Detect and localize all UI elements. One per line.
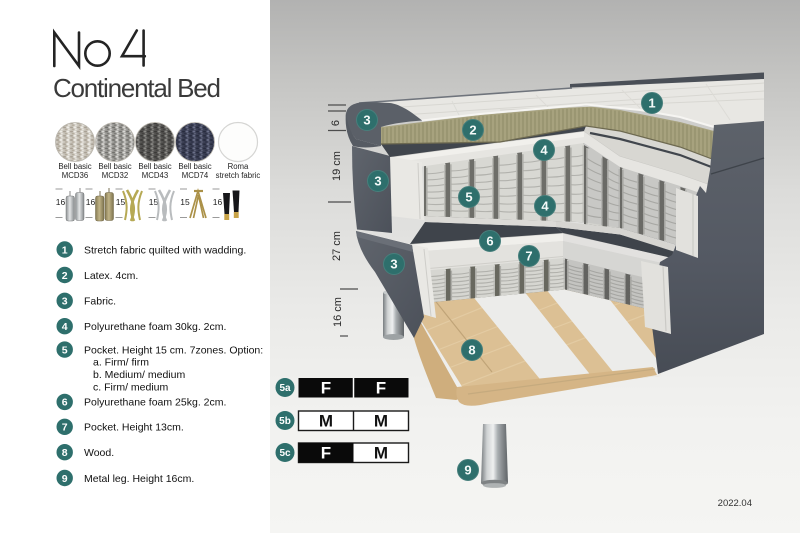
svg-text:3: 3 xyxy=(363,113,370,128)
svg-text:Polyurethane foam 30kg. 2cm.: Polyurethane foam 30kg. 2cm. xyxy=(84,321,226,333)
svg-text:Pocket. Height 15 cm. 7zones.: Pocket. Height 15 cm. 7zones. Option: xyxy=(84,344,263,356)
svg-text:3: 3 xyxy=(374,174,381,189)
svg-text:c. Firm/ medium: c. Firm/ medium xyxy=(93,381,169,393)
svg-text:Bell basic: Bell basic xyxy=(138,162,171,171)
svg-text:4: 4 xyxy=(541,199,549,214)
svg-text:4: 4 xyxy=(540,143,548,158)
svg-text:16 cm: 16 cm xyxy=(332,297,344,327)
svg-text:5a: 5a xyxy=(279,383,291,394)
svg-text:F: F xyxy=(321,444,331,463)
svg-text:5: 5 xyxy=(465,190,472,205)
svg-text:MCD43: MCD43 xyxy=(142,171,168,180)
svg-text:8: 8 xyxy=(468,343,475,358)
svg-text:1: 1 xyxy=(648,96,655,111)
svg-text:6: 6 xyxy=(486,234,493,249)
svg-text:6: 6 xyxy=(62,397,68,409)
svg-text:15: 15 xyxy=(116,197,126,207)
svg-text:1: 1 xyxy=(62,244,68,256)
svg-text:Fabric.: Fabric. xyxy=(84,296,116,308)
svg-text:3: 3 xyxy=(390,257,397,272)
svg-text:MCD32: MCD32 xyxy=(102,171,128,180)
svg-text:Polyurethane foam 25kg. 2cm.: Polyurethane foam 25kg. 2cm. xyxy=(84,397,226,409)
svg-text:5c: 5c xyxy=(279,448,291,459)
svg-text:27 cm: 27 cm xyxy=(331,231,343,261)
svg-text:3: 3 xyxy=(62,296,68,308)
svg-text:Bell basic: Bell basic xyxy=(98,162,131,171)
svg-text:M: M xyxy=(374,444,388,463)
svg-text:Roma: Roma xyxy=(228,162,249,171)
svg-text:4: 4 xyxy=(62,321,68,333)
svg-text:2022.04: 2022.04 xyxy=(718,498,752,509)
svg-text:Latex. 4cm.: Latex. 4cm. xyxy=(84,270,138,282)
svg-text:5: 5 xyxy=(62,344,68,356)
svg-text:16: 16 xyxy=(56,197,66,207)
svg-text:9: 9 xyxy=(464,463,471,478)
svg-text:a. Firm/ firm: a. Firm/ firm xyxy=(93,357,149,369)
svg-text:Bell basic: Bell basic xyxy=(178,162,211,171)
svg-text:9: 9 xyxy=(62,473,68,485)
svg-text:7: 7 xyxy=(525,249,532,264)
svg-text:5b: 5b xyxy=(279,416,291,427)
svg-text:b. Medium/ medium: b. Medium/ medium xyxy=(93,369,185,381)
svg-text:2: 2 xyxy=(469,123,476,138)
svg-text:Continental Bed: Continental Bed xyxy=(53,73,221,103)
svg-text:F: F xyxy=(376,379,386,398)
svg-text:Stretch fabric quilted with wa: Stretch fabric quilted with wadding. xyxy=(84,244,246,256)
svg-text:8: 8 xyxy=(62,447,68,459)
svg-text:Bell basic: Bell basic xyxy=(58,162,91,171)
svg-text:M: M xyxy=(374,412,388,431)
svg-text:15: 15 xyxy=(180,197,190,207)
svg-text:2: 2 xyxy=(62,270,68,282)
svg-text:Metal leg. Height 16cm.: Metal leg. Height 16cm. xyxy=(84,473,194,485)
svg-text:16: 16 xyxy=(86,197,96,207)
svg-text:Pocket. Height 13cm.: Pocket. Height 13cm. xyxy=(84,422,184,434)
svg-text:7: 7 xyxy=(62,422,68,434)
svg-text:Wood.: Wood. xyxy=(84,447,114,459)
svg-text:F: F xyxy=(321,379,331,398)
svg-text:stretch fabric: stretch fabric xyxy=(216,171,261,180)
svg-text:M: M xyxy=(319,412,333,431)
svg-text:MCD36: MCD36 xyxy=(62,171,88,180)
svg-text:MCD74: MCD74 xyxy=(182,171,209,180)
svg-text:6: 6 xyxy=(330,120,342,126)
svg-text:16: 16 xyxy=(213,197,223,207)
svg-text:19 cm: 19 cm xyxy=(331,151,343,181)
